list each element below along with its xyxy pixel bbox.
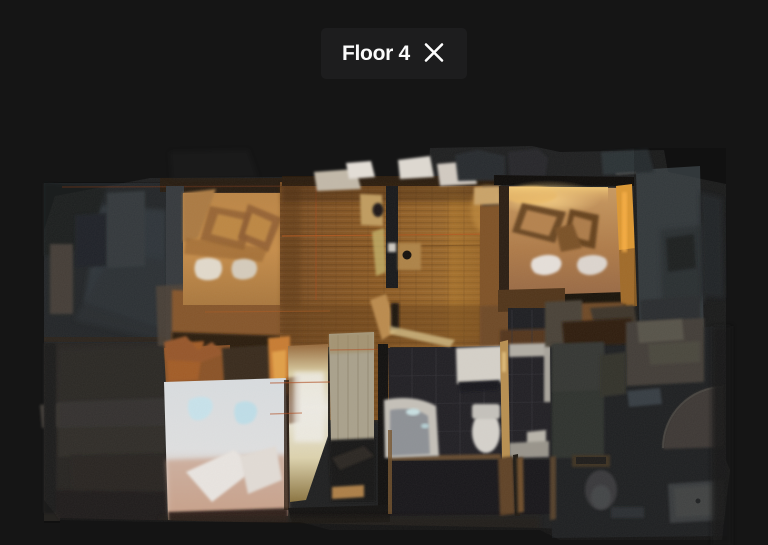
svg-text:Floor 4: Floor 4 [342,42,411,65]
